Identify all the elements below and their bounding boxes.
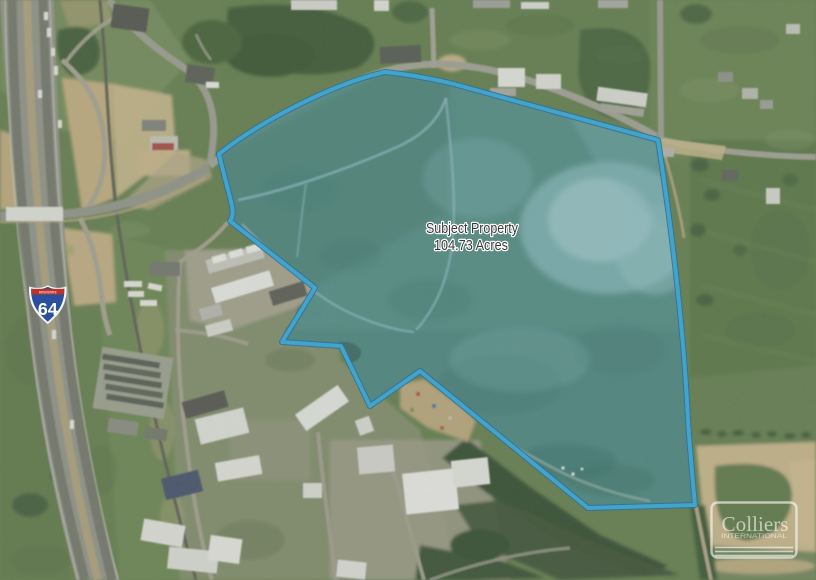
svg-text:64: 64 bbox=[38, 299, 58, 319]
svg-text:INTERNATIONAL: INTERNATIONAL bbox=[721, 533, 788, 540]
svg-text:Subject Property: Subject Property bbox=[426, 221, 519, 237]
svg-text:104.73 Acres: 104.73 Acres bbox=[434, 238, 508, 254]
svg-text:INTERSTATE: INTERSTATE bbox=[39, 290, 58, 294]
